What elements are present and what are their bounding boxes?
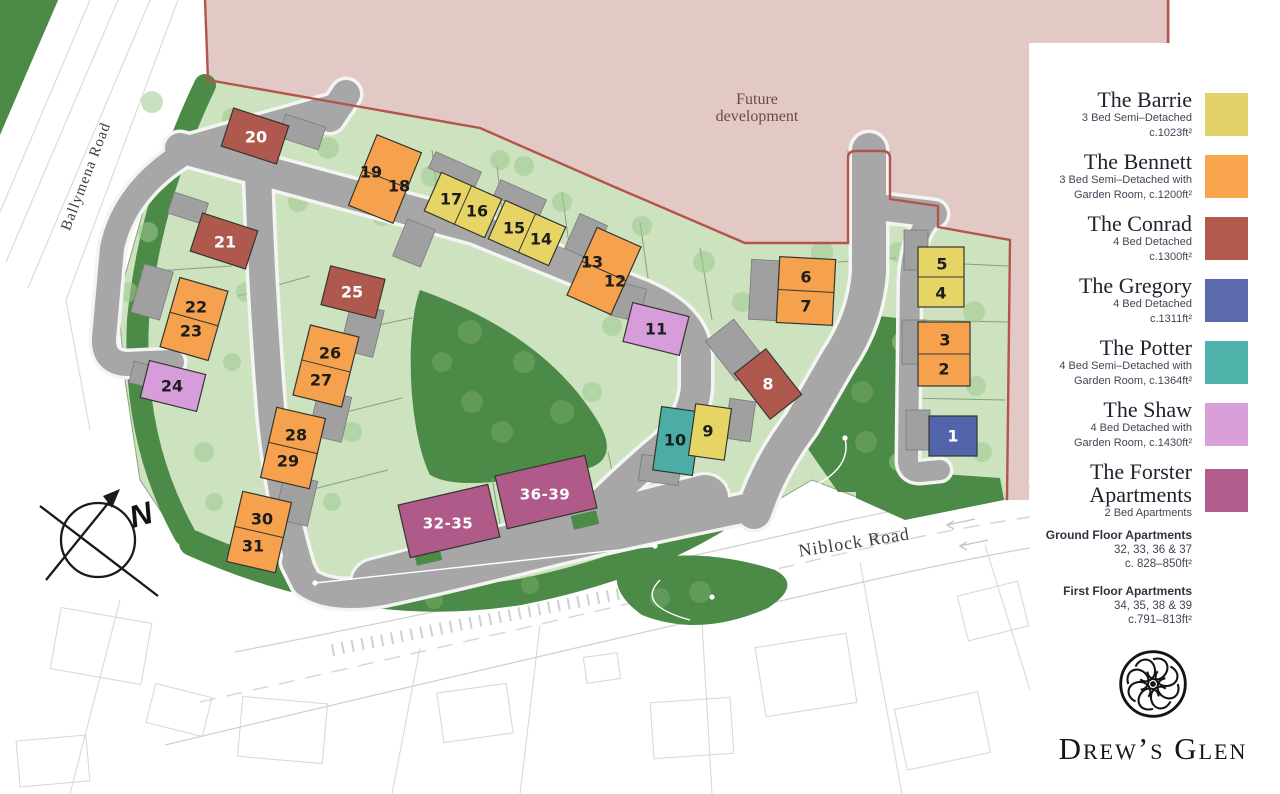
plot-label-22: 22 — [185, 298, 207, 317]
plot-label-25: 25 — [341, 283, 363, 302]
plot-label-31: 31 — [242, 537, 264, 556]
house-type-name: The Bennett — [1059, 150, 1192, 173]
plot-label-3: 3 — [939, 331, 950, 350]
plot-label-13: 13 — [581, 253, 603, 272]
plot-label-10: 10 — [664, 431, 686, 450]
plot-label-28: 28 — [285, 426, 307, 445]
legend-color-swatch — [1205, 341, 1248, 384]
house-type-description: 4 Bed Semi–Detached with — [1059, 359, 1192, 374]
legend-item-text: The Shaw4 Bed Detached withGarden Room, … — [1074, 398, 1192, 450]
legend-item-the-forster-apartments: The ForsterApartments2 Bed Apartments — [1038, 460, 1248, 521]
drews-glen-logo — [1115, 646, 1191, 722]
ground-floor-units: 32, 33, 36 & 37 — [992, 543, 1192, 557]
plot-label-27: 27 — [310, 371, 332, 390]
legend-color-swatch — [1205, 279, 1248, 322]
house-type-description: 3 Bed Semi–Detached — [1082, 111, 1192, 126]
plot-label-18: 18 — [388, 177, 410, 196]
plot-label-24: 24 — [161, 377, 183, 396]
legend-item-the-gregory: The Gregory4 Bed Detachedc.1311ft² — [1038, 274, 1248, 326]
plot-label-2: 2 — [938, 360, 949, 379]
plot-label-29: 29 — [277, 452, 299, 471]
house-type-description: 4 Bed Detached — [1079, 297, 1192, 312]
legend-color-swatch — [1205, 155, 1248, 198]
house-type-description: 4 Bed Detached with — [1074, 421, 1192, 436]
legend-item-text: The Gregory4 Bed Detachedc.1311ft² — [1079, 274, 1192, 326]
plot-label-5: 5 — [936, 255, 947, 274]
plot-label-7: 7 — [800, 297, 811, 316]
plot-label-21: 21 — [214, 233, 236, 252]
legend-item-text: The Conrad4 Bed Detachedc.1300ft² — [1088, 212, 1192, 264]
legend-item-the-bennett: The Bennett3 Bed Semi–Detached withGarde… — [1038, 150, 1248, 202]
future-development-label-line2: development — [716, 108, 799, 125]
first-floor-title: First Floor Apartments — [992, 584, 1192, 599]
house-type-description: Garden Room, c.1364ft² — [1059, 374, 1192, 389]
future-development-label-line1: Future — [736, 91, 778, 108]
site-plan-page: 2019181716151413122122232526272428293031… — [0, 0, 1280, 794]
ground-floor-size: c. 828–850ft² — [992, 557, 1192, 571]
legend-color-swatch — [1205, 403, 1248, 446]
plot-label-15: 15 — [503, 219, 525, 238]
brand-block: Drew’s Glen — [1038, 646, 1268, 767]
house-type-name: The Barrie — [1082, 88, 1192, 111]
legend-item-the-shaw: The Shaw4 Bed Detached withGarden Room, … — [1038, 398, 1248, 450]
apartment-notes: Ground Floor Apartments 32, 33, 36 & 37 … — [992, 528, 1192, 640]
house-type-description: Garden Room, c.1200ft² — [1059, 188, 1192, 203]
plot-label-36-39: 36-39 — [520, 486, 570, 504]
compass-north-label: N — [125, 495, 157, 535]
first-floor-apartments-note: First Floor Apartments 34, 35, 38 & 39 c… — [992, 584, 1192, 627]
legend-item-the-potter: The Potter4 Bed Semi–Detached withGarden… — [1038, 336, 1248, 388]
first-floor-size: c.791–813ft² — [992, 613, 1192, 627]
compass: N — [40, 489, 158, 596]
plot-label-6: 6 — [800, 268, 811, 287]
plot-label-12: 12 — [604, 272, 626, 291]
legend-color-swatch — [1205, 93, 1248, 136]
house-type-description: 3 Bed Semi–Detached with — [1059, 173, 1192, 188]
house-type-name: The Potter — [1059, 336, 1192, 359]
plot-label-17: 17 — [440, 190, 462, 209]
house-type-name: Apartments — [1089, 483, 1192, 506]
house-type-name: The Forster — [1089, 460, 1192, 483]
legend-item-text: The Barrie3 Bed Semi–Detachedc.1023ft² — [1082, 88, 1192, 140]
house-type-description: c.1311ft² — [1079, 312, 1192, 327]
plot-label-20: 20 — [245, 128, 267, 147]
brand-name: Drew’s Glen — [1038, 731, 1268, 767]
house-type-description: 2 Bed Apartments — [1089, 506, 1192, 521]
legend-color-swatch — [1205, 469, 1248, 512]
plot-label-14: 14 — [530, 230, 552, 249]
plot-label-19: 19 — [360, 163, 382, 182]
house-type-name: The Shaw — [1074, 398, 1192, 421]
legend-item-the-conrad: The Conrad4 Bed Detachedc.1300ft² — [1038, 212, 1248, 264]
house-type-name: The Gregory — [1079, 274, 1192, 297]
house-type-name: The Conrad — [1088, 212, 1192, 235]
plot-label-32-35: 32-35 — [423, 515, 473, 533]
house-type-description: 4 Bed Detached — [1088, 235, 1192, 250]
ballymena-road-label: Ballymena Road — [58, 120, 114, 233]
house-type-description: c.1023ft² — [1082, 126, 1192, 141]
plot-label-30: 30 — [251, 510, 273, 529]
plot-label-26: 26 — [319, 344, 341, 363]
legend-item-text: The Potter4 Bed Semi–Detached withGarden… — [1059, 336, 1192, 388]
legend-item-the-barrie: The Barrie3 Bed Semi–Detachedc.1023ft² — [1038, 88, 1248, 140]
niblock-road-label: Niblock Road — [797, 523, 911, 560]
first-floor-units: 34, 35, 38 & 39 — [992, 599, 1192, 613]
plot-label-23: 23 — [180, 322, 202, 341]
plot-label-16: 16 — [466, 202, 488, 221]
house-type-description: Garden Room, c.1430ft² — [1074, 436, 1192, 451]
legend-item-text: The ForsterApartments2 Bed Apartments — [1089, 460, 1192, 521]
ground-floor-apartments-note: Ground Floor Apartments 32, 33, 36 & 37 … — [992, 528, 1192, 571]
plot-label-1: 1 — [947, 427, 958, 446]
legend-color-swatch — [1205, 217, 1248, 260]
house-type-description: c.1300ft² — [1088, 250, 1192, 265]
plot-label-4: 4 — [935, 284, 946, 303]
plot-label-8: 8 — [762, 375, 773, 394]
plot-label-11: 11 — [645, 320, 667, 339]
plot-label-9: 9 — [702, 422, 713, 441]
legend-item-text: The Bennett3 Bed Semi–Detached withGarde… — [1059, 150, 1192, 202]
legend-panel: The Barrie3 Bed Semi–Detachedc.1023ft²Th… — [1030, 0, 1280, 794]
legend-list: The Barrie3 Bed Semi–Detachedc.1023ft²Th… — [1038, 88, 1248, 531]
ground-floor-title: Ground Floor Apartments — [992, 528, 1192, 543]
